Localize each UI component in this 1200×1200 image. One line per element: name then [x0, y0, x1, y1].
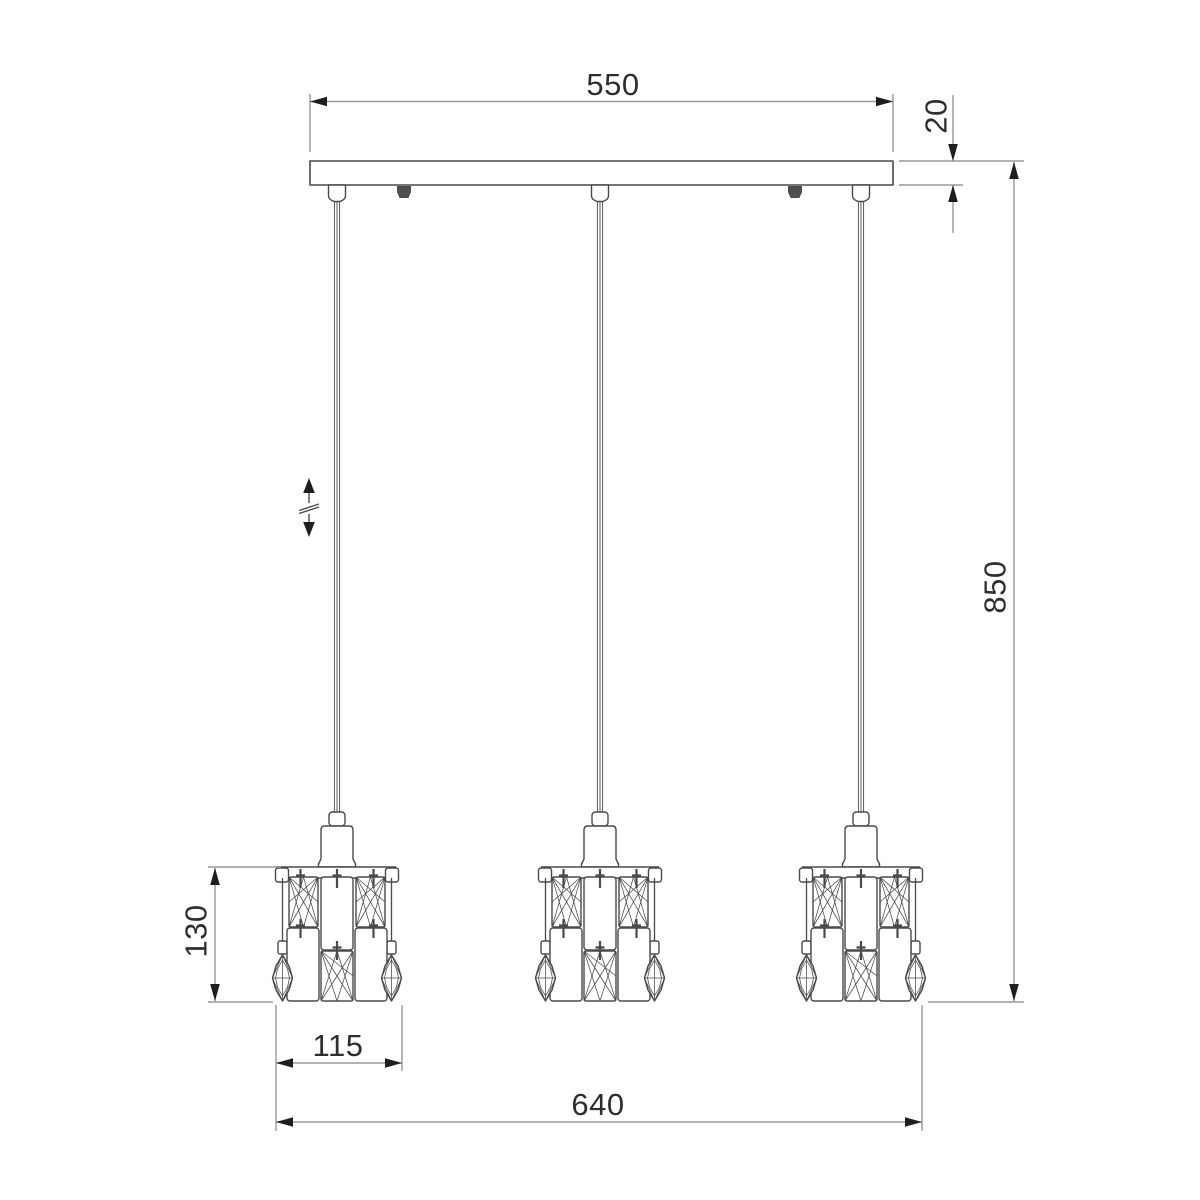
- label-overall-width: 640: [571, 1087, 624, 1122]
- label-overall-drop: 850: [978, 560, 1013, 613]
- label-canopy-thickness: 20: [919, 98, 954, 133]
- cord-grip-right: [853, 185, 870, 202]
- ceiling-canopy-bar: [310, 161, 893, 185]
- mounting-screw-right: [789, 187, 802, 198]
- technical-drawing-page: 550 20 850 130 115 640: [0, 0, 1200, 1200]
- label-shade-width: 115: [313, 1028, 364, 1063]
- label-shade-height: 130: [179, 904, 214, 957]
- mounting-screw-left: [398, 187, 411, 198]
- cord-grip-left: [329, 185, 346, 202]
- cord-grip-center: [592, 185, 609, 202]
- label-canopy-width: 550: [586, 67, 639, 102]
- pendant-light-dimension-drawing: 550 20 850 130 115 640: [0, 0, 1200, 1200]
